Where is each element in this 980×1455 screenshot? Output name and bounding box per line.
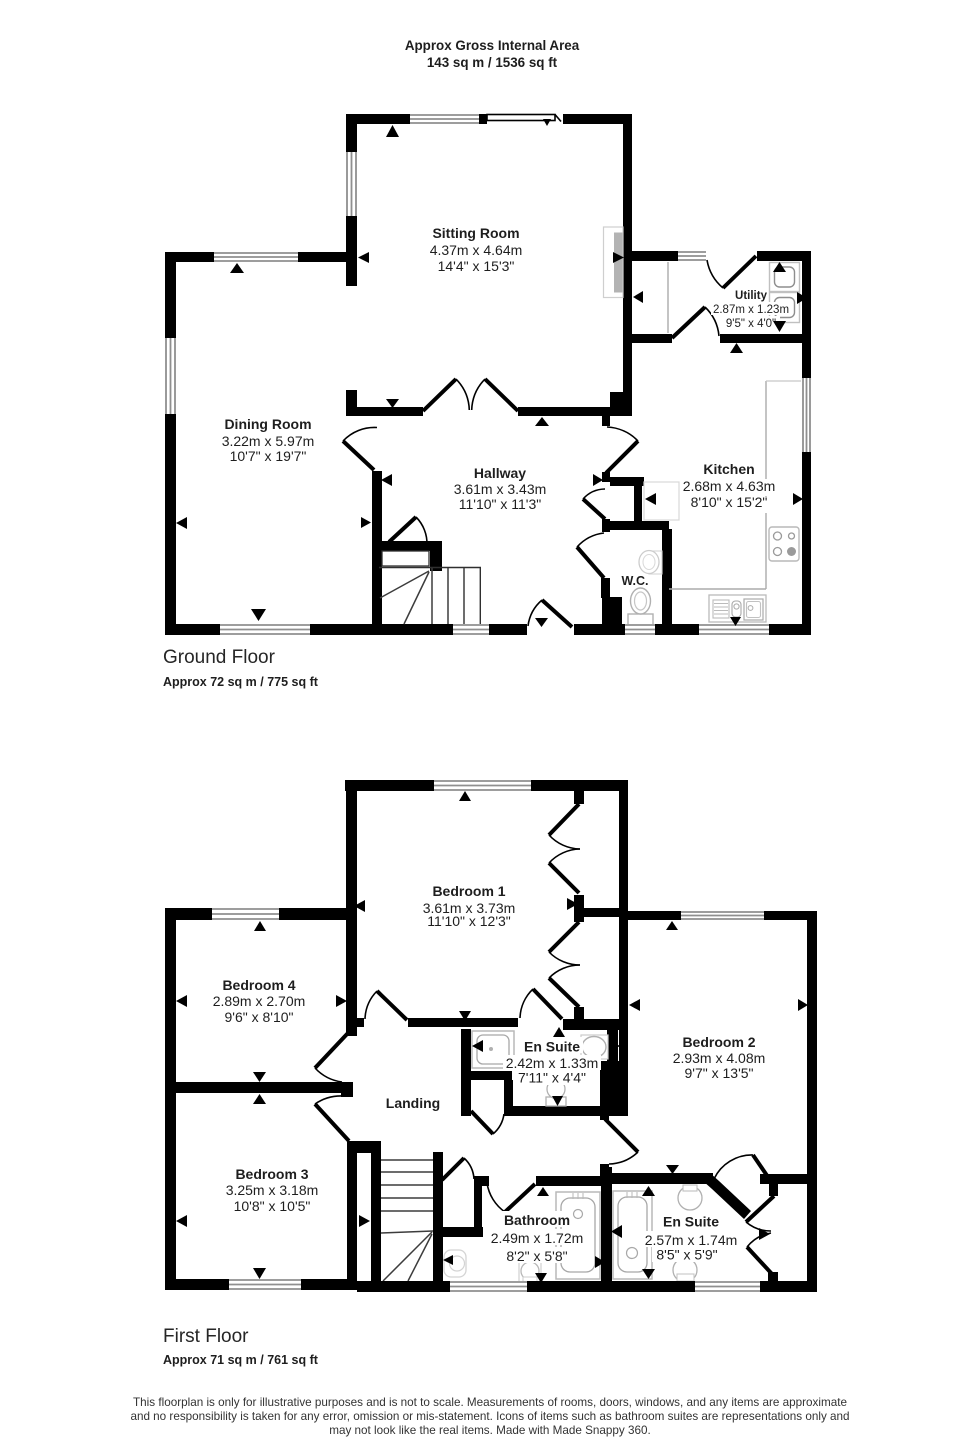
svg-text:Bedroom 2: Bedroom 2 bbox=[682, 1034, 755, 1050]
svg-text:8'5" x 5'9": 8'5" x 5'9" bbox=[656, 1247, 717, 1263]
svg-text:3.61m x 3.43m: 3.61m x 3.43m bbox=[454, 481, 547, 497]
svg-text:Bedroom 3: Bedroom 3 bbox=[235, 1166, 308, 1182]
svg-text:2.68m x 4.63m: 2.68m x 4.63m bbox=[683, 478, 776, 494]
svg-text:and no responsibility is taken: and no responsibility is taken for any e… bbox=[130, 1410, 849, 1423]
svg-text:First Floor: First Floor bbox=[163, 1326, 249, 1347]
svg-text:10'7" x 19'7": 10'7" x 19'7" bbox=[230, 448, 307, 464]
svg-text:Approx Gross Internal Area: Approx Gross Internal Area bbox=[405, 38, 580, 53]
svg-text:Sitting Room: Sitting Room bbox=[432, 225, 519, 241]
svg-text:7'11" x 4'4": 7'11" x 4'4" bbox=[518, 1070, 586, 1086]
svg-text:W.C.: W.C. bbox=[621, 574, 648, 588]
svg-text:Hallway: Hallway bbox=[474, 465, 526, 481]
svg-text:10'8" x 10'5": 10'8" x 10'5" bbox=[234, 1198, 311, 1214]
svg-text:4.37m x 4.64m: 4.37m x 4.64m bbox=[430, 242, 523, 258]
svg-text:En Suite: En Suite bbox=[663, 1214, 719, 1230]
svg-text:8'10" x 15'2": 8'10" x 15'2" bbox=[691, 494, 768, 510]
svg-text:This floorplan is only for ill: This floorplan is only for illustrative … bbox=[133, 1396, 847, 1409]
svg-text:2.93m x 4.08m: 2.93m x 4.08m bbox=[673, 1050, 766, 1066]
svg-text:8'2" x 5'8": 8'2" x 5'8" bbox=[506, 1248, 567, 1264]
svg-text:9'6" x 8'10": 9'6" x 8'10" bbox=[225, 1009, 294, 1025]
svg-text:Landing: Landing bbox=[386, 1095, 440, 1111]
svg-text:3.25m x 3.18m: 3.25m x 3.18m bbox=[226, 1182, 319, 1198]
svg-text:2.49m x 1.72m: 2.49m x 1.72m bbox=[491, 1230, 584, 1246]
svg-text:Bathroom: Bathroom bbox=[504, 1212, 570, 1228]
svg-text:Bedroom 1: Bedroom 1 bbox=[432, 883, 505, 899]
svg-text:11'10" x 12'3": 11'10" x 12'3" bbox=[427, 913, 511, 929]
svg-text:9'7" x 13'5": 9'7" x 13'5" bbox=[685, 1065, 754, 1081]
svg-text:Ground Floor: Ground Floor bbox=[163, 647, 276, 668]
svg-text:11'10" x 11'3": 11'10" x 11'3" bbox=[459, 496, 542, 512]
svg-text:2.87m x 1.23m: 2.87m x 1.23m bbox=[713, 304, 789, 316]
svg-text:143 sq m / 1536 sq ft: 143 sq m / 1536 sq ft bbox=[427, 55, 558, 70]
svg-text:En Suite: En Suite bbox=[524, 1039, 580, 1055]
svg-text:Dining Room: Dining Room bbox=[224, 416, 311, 432]
svg-text:Approx 72 sq m / 775 sq ft: Approx 72 sq m / 775 sq ft bbox=[163, 675, 319, 689]
svg-text:Bedroom 4: Bedroom 4 bbox=[222, 977, 295, 993]
svg-text:may not look like the real ite: may not look like the real items. Made w… bbox=[329, 1424, 651, 1437]
svg-text:3.22m x 5.97m: 3.22m x 5.97m bbox=[222, 433, 315, 449]
svg-text:Approx 71 sq m / 761 sq ft: Approx 71 sq m / 761 sq ft bbox=[163, 1353, 319, 1367]
svg-text:2.89m x 2.70m: 2.89m x 2.70m bbox=[213, 993, 306, 1009]
svg-text:9'5" x 4'0": 9'5" x 4'0" bbox=[726, 318, 776, 330]
svg-text:14'4" x 15'3": 14'4" x 15'3" bbox=[438, 258, 515, 274]
svg-text:Utility: Utility bbox=[735, 290, 768, 302]
svg-text:Kitchen: Kitchen bbox=[703, 461, 754, 477]
